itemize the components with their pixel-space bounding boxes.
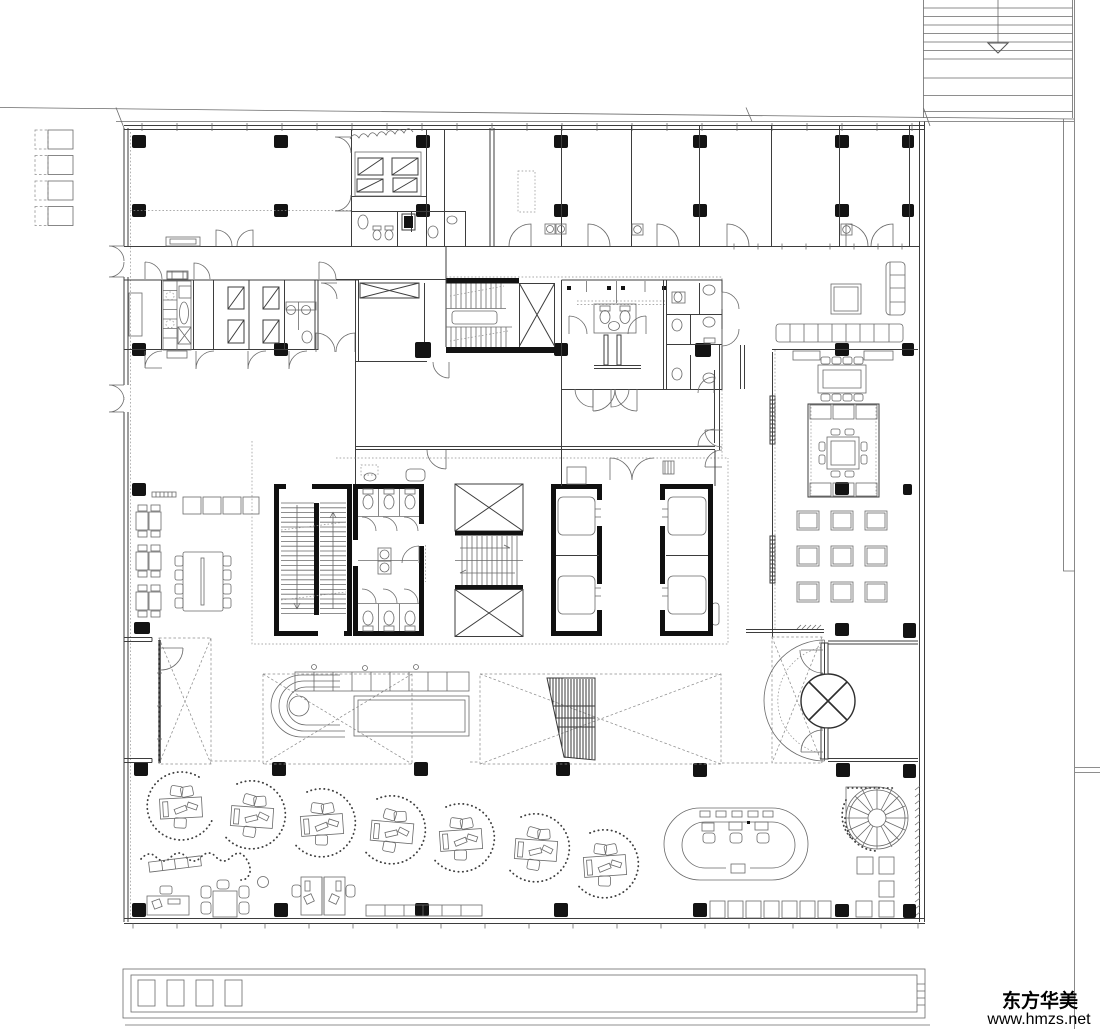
svg-text:东方华美: 东方华美 (1002, 989, 1079, 1012)
svg-text:www.hmzs.net: www.hmzs.net (986, 1011, 1091, 1028)
